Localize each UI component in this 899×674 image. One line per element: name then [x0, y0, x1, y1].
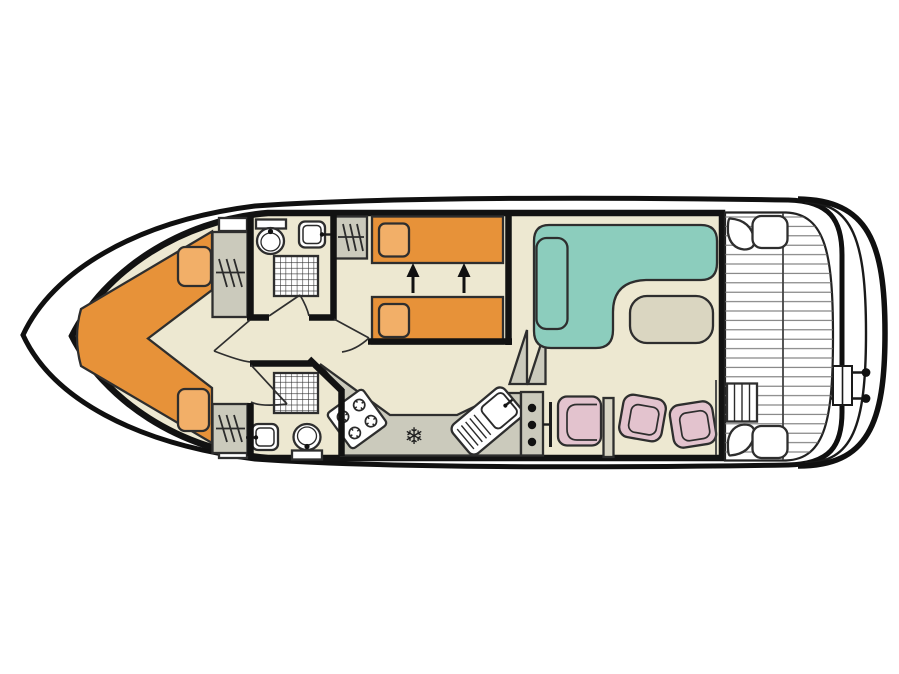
aft-deck [725, 213, 833, 461]
mid-wardrobe [335, 217, 367, 259]
wall-stub [604, 398, 614, 457]
floor-plan-canvas: ❄ [0, 0, 899, 674]
helm-seat [558, 397, 601, 446]
boat-floor-plan: ❄ [0, 0, 899, 674]
toilet-bottom [292, 424, 322, 460]
deck-steps [727, 384, 757, 422]
sofa-back-cushion [537, 238, 568, 329]
stool-2 [668, 400, 717, 449]
deck-bench-bottom [728, 425, 788, 459]
saloon-table [630, 296, 713, 343]
shower-bottom [274, 373, 318, 413]
deck-bench-top [728, 216, 788, 250]
stool-1 [618, 393, 668, 443]
bow-locker-top [219, 218, 247, 231]
bow-wardrobe-top [213, 232, 248, 317]
toilet-top [256, 220, 286, 255]
freezer-icon: ❄ [404, 424, 423, 450]
bow-wardrobe-bottom [213, 404, 248, 453]
helm-console [521, 392, 543, 456]
shower-top [274, 256, 318, 296]
